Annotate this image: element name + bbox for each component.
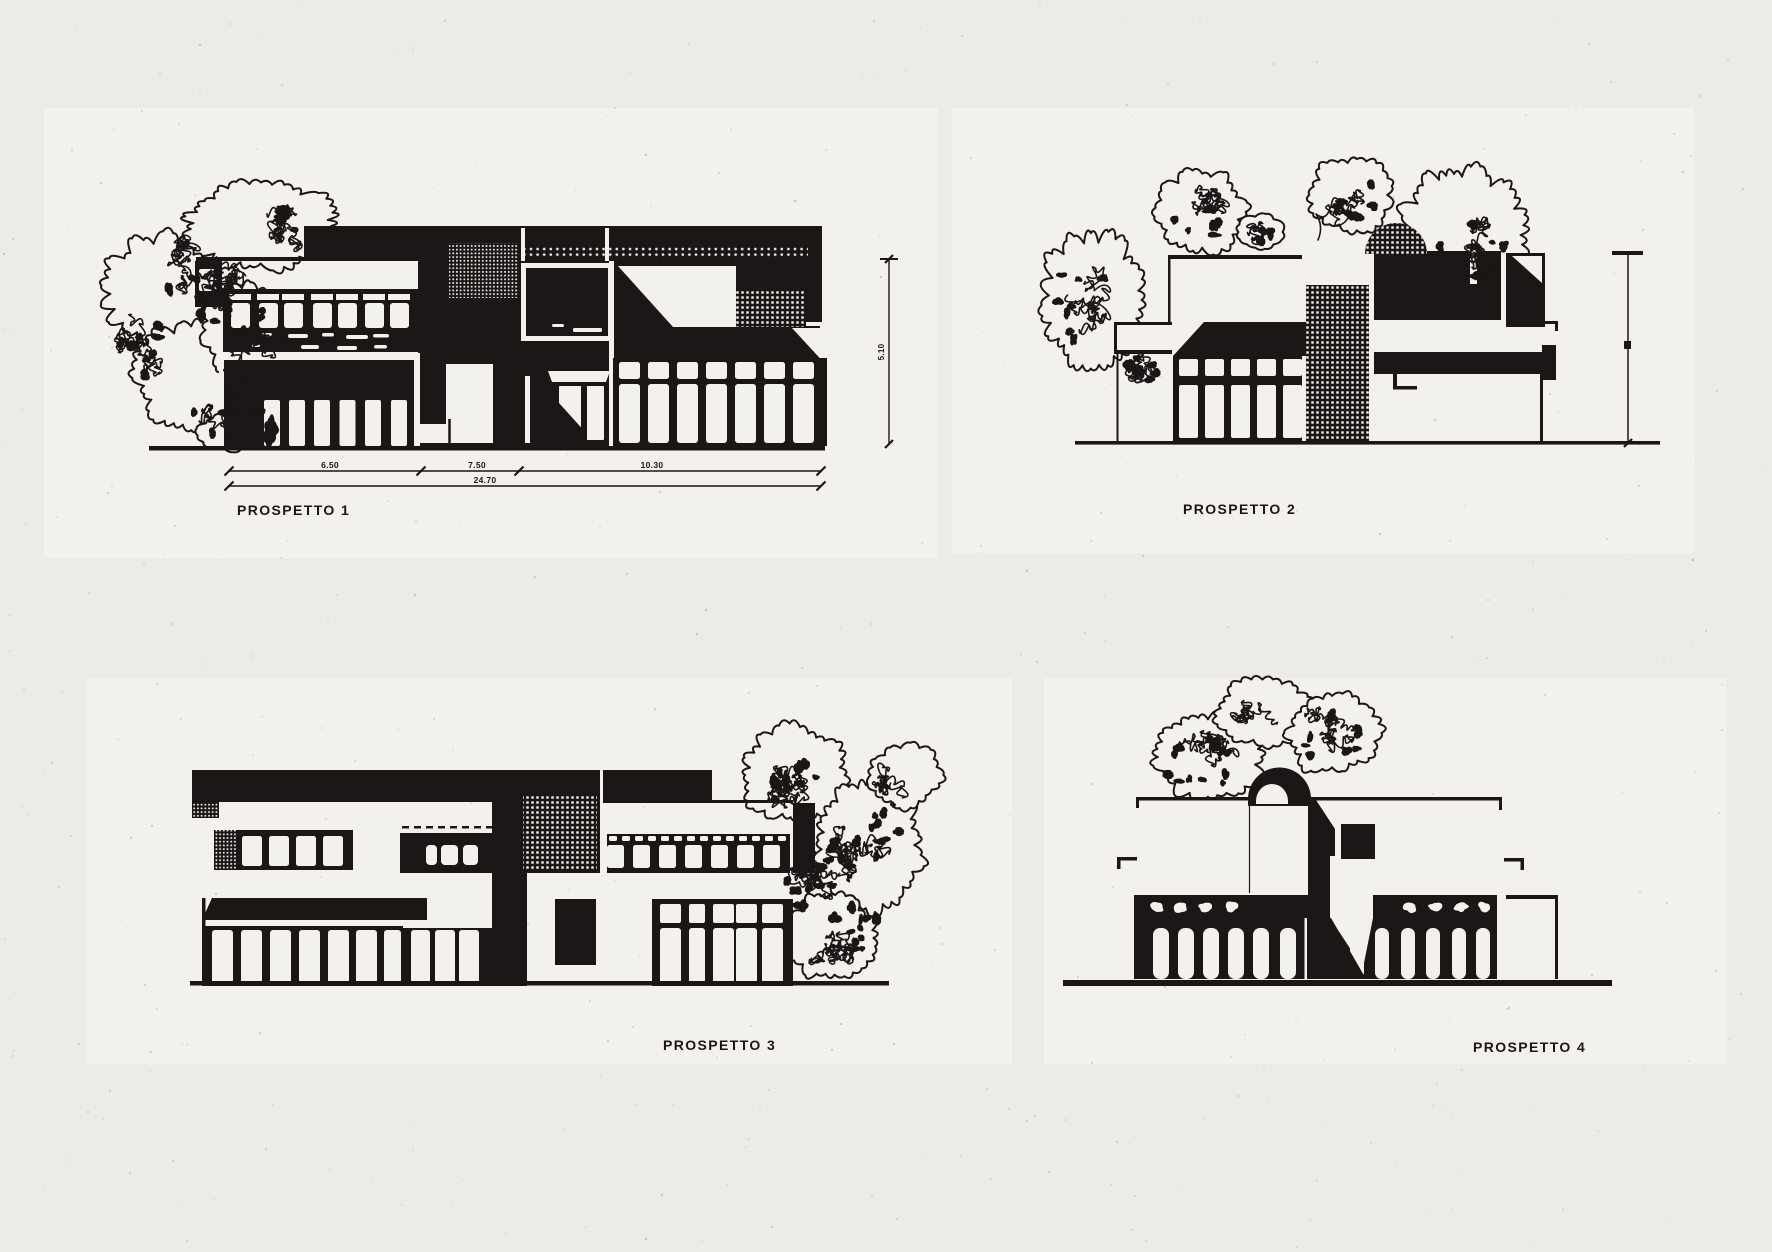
svg-text:7.50: 7.50 bbox=[468, 460, 486, 470]
svg-text:PROSPETTO 3: PROSPETTO 3 bbox=[663, 1037, 776, 1053]
svg-text:5.10: 5.10 bbox=[877, 343, 886, 360]
svg-text:10.30: 10.30 bbox=[641, 460, 664, 470]
svg-text:PROSPETTO 2: PROSPETTO 2 bbox=[1183, 501, 1296, 517]
svg-text:PROSPETTO 1: PROSPETTO 1 bbox=[237, 502, 350, 518]
svg-text:PROSPETTO 4: PROSPETTO 4 bbox=[1473, 1039, 1586, 1055]
svg-text:6.50: 6.50 bbox=[321, 460, 339, 470]
svg-text:24.70: 24.70 bbox=[474, 475, 497, 485]
